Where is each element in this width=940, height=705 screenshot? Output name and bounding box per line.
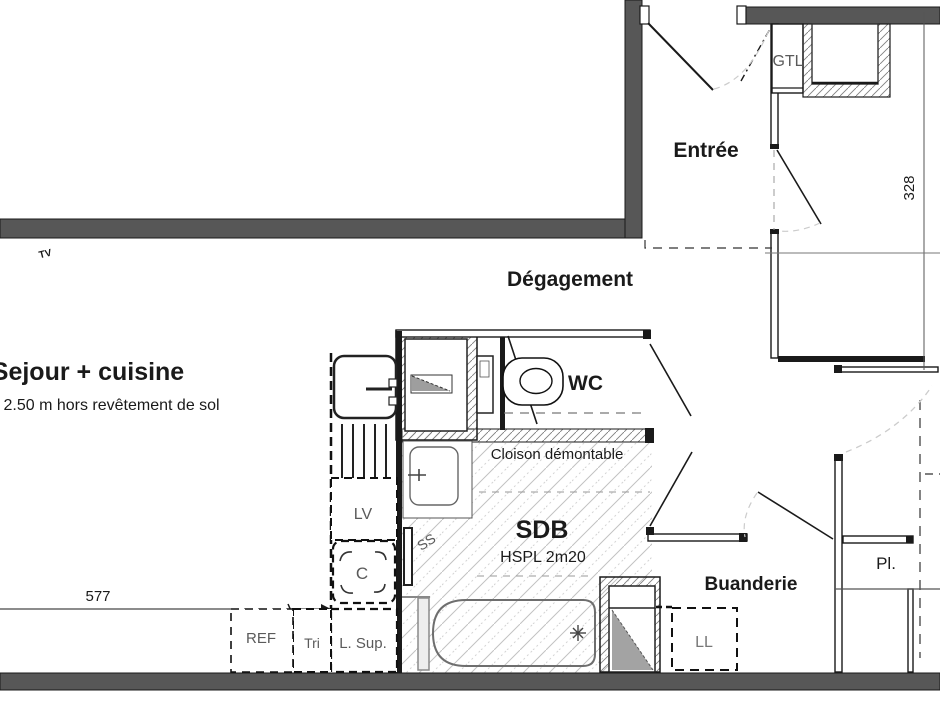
gtl-label: GTL: [772, 53, 803, 70]
duct-shaft-bath: [600, 577, 660, 672]
ceiling-note: ' 2.50 m hors revêtement de sol: [0, 397, 220, 414]
tri-label: Tri: [304, 635, 320, 651]
room-label-wc: WC: [568, 372, 603, 395]
toilet-cistern: [477, 356, 493, 413]
hob-label: C: [356, 564, 368, 583]
duct-shaft-wc: [396, 331, 477, 440]
ll-label: LL: [695, 634, 713, 651]
towel-radiator: [404, 528, 412, 585]
wall-top-left: [0, 219, 642, 238]
dim-577: 577: [85, 588, 110, 605]
room-label-sejour: Sejour + cuisine: [0, 358, 184, 386]
wall-top-right: [745, 7, 940, 24]
duct-shaft-entree: [803, 24, 890, 97]
ref-label: REF: [246, 630, 276, 647]
wall-entree-left: [625, 0, 642, 238]
room-label-degagement: Dégagement: [507, 268, 633, 291]
hspl-label: HSPL 2m20: [500, 549, 586, 566]
lv-label: LV: [354, 506, 373, 523]
lsup-label: L. Sup.: [339, 635, 387, 652]
dim-328: 328: [901, 175, 918, 200]
room-label-buanderie: Buanderie: [705, 574, 798, 595]
room-label-placard: Pl.: [876, 554, 896, 573]
toilet: [477, 356, 563, 413]
cloison-label: Cloison démontable: [491, 446, 624, 463]
closet-bottom-wall: [778, 356, 925, 362]
room-label-sdb: SDB: [516, 516, 569, 544]
kitchen-sink: [334, 356, 397, 418]
toilet-bowl: [503, 358, 563, 405]
wall-bottom: [0, 673, 940, 690]
floor-plan-drawing: Sejour + cuisine ' 2.50 m hors revêtemen…: [0, 0, 940, 705]
room-label-entree: Entrée: [673, 139, 738, 162]
washbasin: [403, 441, 472, 518]
floor-plan: Sejour + cuisine ' 2.50 m hors revêtemen…: [0, 0, 940, 705]
